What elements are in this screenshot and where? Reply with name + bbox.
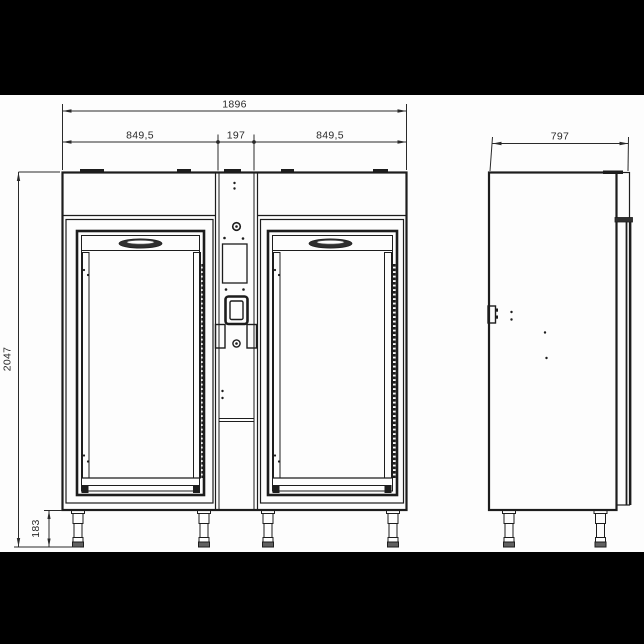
left-door-vent-ellipse	[119, 239, 162, 248]
dim-center-panel-width-label: 197	[227, 130, 245, 142]
dim-right-door-width-label: 849,5	[316, 130, 344, 142]
dim-leg-height-label: 183	[30, 519, 42, 537]
dim-total-width-label: 1896	[222, 99, 247, 111]
dim-total-height-label: 2047	[2, 347, 14, 372]
dim-left-door-width-label: 849,5	[126, 130, 154, 142]
screenshot-stage: 1896 849,5 197 849,5 797 2047 183	[0, 0, 644, 644]
right-door-vent-ellipse	[309, 239, 352, 248]
dim-depth-label: 797	[551, 131, 569, 143]
technical-drawing: 1896 849,5 197 849,5 797 2047 183	[0, 0, 644, 644]
drawing-paper	[0, 95, 644, 552]
side-door-top-seal	[615, 218, 633, 223]
